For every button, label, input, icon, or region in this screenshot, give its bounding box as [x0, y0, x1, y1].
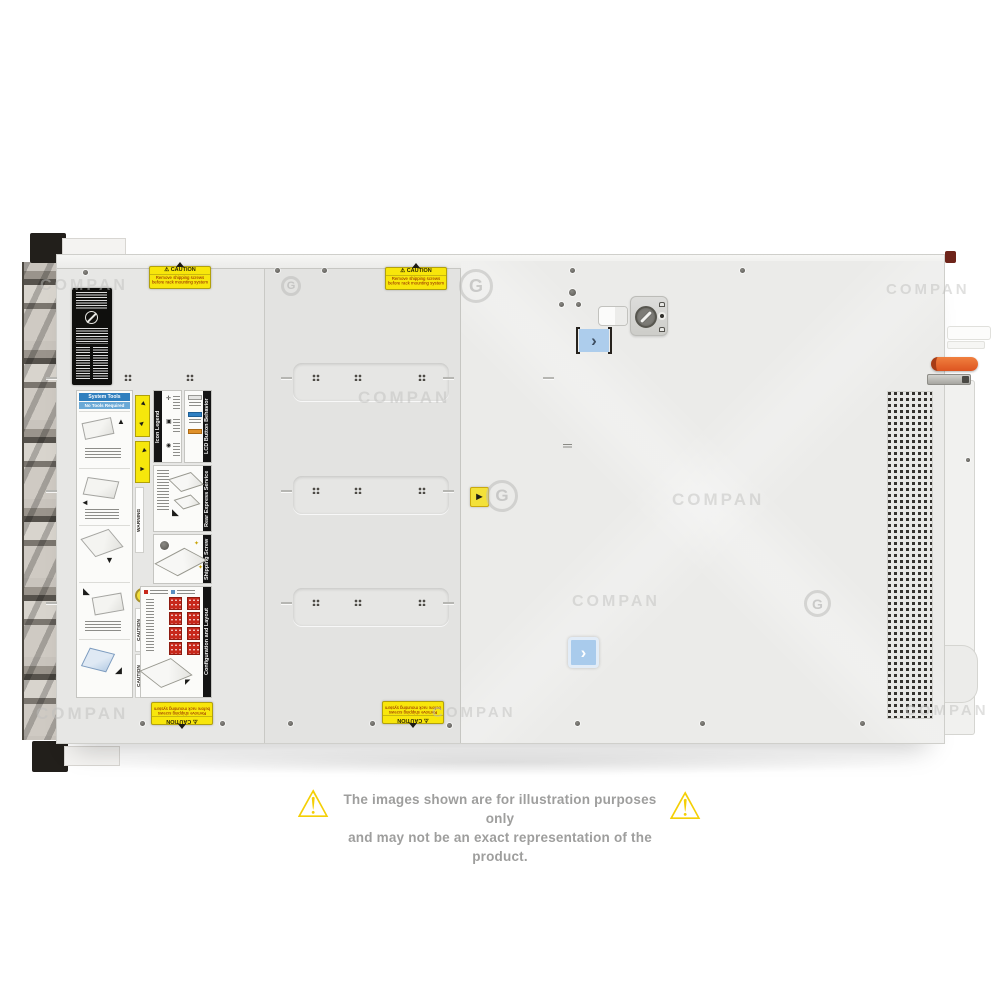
chevron-right-icon: › — [571, 640, 596, 665]
sketch — [92, 593, 125, 616]
fastener-dots — [354, 487, 362, 494]
micro-text — [173, 443, 180, 457]
drive-bay — [187, 642, 200, 655]
fastener-dots — [418, 599, 426, 606]
watermark-logo: G — [281, 276, 301, 296]
side-vent-grid — [887, 391, 933, 719]
warning-triangle-icon: ⚠ — [296, 786, 330, 824]
logo-letter: G — [287, 280, 296, 292]
drive-bay — [169, 627, 182, 640]
caution-sticker-inverted: ⚠ CAUTION Remove shipping screwsbefore r… — [151, 702, 213, 725]
watermark-logo: G — [804, 590, 831, 617]
drive-bay — [187, 597, 200, 610]
watermark-text: COMPAN — [672, 490, 764, 510]
micro-text — [177, 590, 195, 594]
logo-letter: G — [495, 486, 508, 506]
screw — [447, 723, 452, 728]
disclaimer-line1: The images shown are for illustration pu… — [332, 790, 668, 828]
screw — [860, 721, 865, 726]
icon-legend-label: Icon Legend ✛ ▣ ◉ — [153, 390, 182, 463]
hazard-arrow-icon: ► — [474, 491, 485, 503]
drive-bay — [169, 597, 182, 610]
system-tools-header: System Tools — [79, 393, 130, 401]
rear-service-tag-label: Rear Express Service Tag ◣ — [153, 465, 212, 532]
sketch — [80, 529, 123, 557]
screw — [575, 721, 580, 726]
lcd-state-amber — [188, 429, 202, 434]
server-front-bezel — [22, 262, 60, 740]
unlock-icon — [659, 302, 665, 307]
fastener-dots — [312, 599, 320, 606]
arrow-icon: ▲ — [117, 418, 125, 426]
screw — [740, 268, 745, 273]
yellow-arrow-cell: ► ► — [135, 395, 150, 437]
fastener-dots — [418, 374, 426, 381]
drive-bay — [187, 612, 200, 625]
micro-text — [173, 396, 180, 410]
disclaimer-text: The images shown are for illustration pu… — [332, 790, 668, 866]
vent-dash — [443, 377, 454, 379]
screw — [220, 721, 225, 726]
red-legend-dot — [144, 590, 148, 594]
drive-bay — [169, 612, 182, 625]
warning-triangle-icon: ⚠ — [668, 788, 702, 826]
fastener-dots — [312, 374, 320, 381]
watermark-text: COMPAN — [358, 388, 450, 408]
configuration-label: Configuration and Layout ◤ — [140, 586, 212, 698]
service-label-panel: System Tools No Tools Required ▲ ◄ ▼ ◣ — [76, 390, 212, 700]
rack-ear-bottom — [32, 741, 68, 772]
caution-line2: before rack mounting system — [152, 280, 209, 285]
warning-triangle-icon: ⚠ — [193, 718, 198, 724]
drive-bay-grid — [169, 597, 182, 657]
screw — [322, 268, 327, 273]
screw — [569, 289, 576, 296]
label-text-lines — [76, 328, 108, 344]
micro-text — [85, 621, 121, 633]
arrow-icon: ◢ — [115, 666, 122, 675]
chevron-right-icon: › — [579, 329, 609, 352]
instruction-diagram: ◄ — [79, 468, 130, 523]
micro-text — [150, 590, 168, 594]
instruction-diagram: ◣ — [79, 582, 130, 637]
screw — [140, 721, 145, 726]
arrow-icon: ► — [139, 466, 146, 473]
micro-text — [85, 509, 119, 519]
watermark-logo: G — [459, 269, 493, 303]
screw — [570, 268, 575, 273]
watermark-text: COMPAN — [36, 704, 128, 724]
legend-icon: ◉ — [166, 443, 171, 449]
vent-dash — [281, 377, 292, 379]
screw — [966, 458, 970, 462]
rear-tag-header: Rear Express Service Tag — [203, 466, 211, 531]
lock-position-dot — [658, 312, 666, 320]
vent-dash — [281, 490, 292, 492]
arrow-icon: ◣ — [172, 508, 179, 517]
arrow-icon: ◄ — [81, 499, 89, 507]
watermark-text: COMPAN — [432, 704, 516, 721]
caution-line1: Remove shipping screws — [154, 711, 211, 716]
caution-line2: before rack mounting system — [388, 281, 445, 286]
blue-legend-dot — [171, 590, 175, 594]
arrow-icon: ► — [139, 400, 149, 410]
handle-recess — [293, 476, 449, 514]
no-touch-icon — [85, 311, 98, 324]
micro-text — [189, 419, 201, 425]
screw — [83, 270, 88, 275]
keylock-icon — [635, 306, 657, 328]
arrow-icon: ◤ — [185, 679, 190, 686]
no-tools-header: No Tools Required — [79, 402, 130, 409]
handle-recess — [293, 588, 449, 626]
chassis-sketch — [168, 472, 204, 492]
watermark-text: COMPAN — [40, 277, 128, 295]
drop-shadow — [70, 748, 930, 776]
legend-icon: ✛ — [166, 396, 171, 402]
vent-dash — [46, 602, 57, 604]
watermark-text: COMPAN — [572, 593, 660, 611]
disclaimer-line2: and may not be an exact representation o… — [332, 828, 668, 866]
lcd-state-blue — [188, 412, 202, 417]
sketch — [82, 417, 115, 440]
instruction-diagram: ▲ — [79, 411, 130, 466]
vent-dash — [543, 377, 554, 379]
caution-line2: before rack mounting system — [154, 706, 211, 711]
screw — [576, 302, 581, 307]
tools-instruction-label: System Tools No Tools Required ▲ ◄ ▼ ◣ — [76, 390, 133, 698]
pointer-mark — [176, 262, 184, 267]
fastener-dots — [124, 374, 132, 381]
micro-text — [146, 599, 154, 651]
fastener-dots — [186, 374, 194, 381]
screw — [700, 721, 705, 726]
icon-legend-header: Icon Legend — [154, 391, 162, 462]
micro-text — [85, 448, 121, 460]
product-photo-scene: › › ⚠ CAUTION Remove shipping screwsbefo… — [0, 0, 1000, 1000]
logo-letter: G — [812, 596, 823, 612]
micro-text — [189, 402, 201, 408]
arrow-icon: ◣ — [83, 587, 90, 596]
fastener-dots — [354, 374, 362, 381]
arrow-icon: ► — [139, 446, 149, 456]
rail-latch — [927, 374, 971, 385]
instruction-diagram: ▼ — [79, 525, 130, 580]
caution-sticker: ⚠ CAUTION Remove shipping screwsbefore r… — [385, 267, 447, 290]
label-text-lines — [76, 347, 90, 380]
screw — [288, 721, 293, 726]
caution-sticker: ⚠ CAUTION Remove shipping screwsbefore r… — [149, 266, 211, 289]
lock-icon — [659, 327, 665, 332]
lcd-button-header: LCD Button Behavior — [203, 391, 211, 462]
warning-triangle-icon: ⚠ — [424, 717, 429, 723]
watermark-text: COMPAN — [905, 702, 989, 719]
drive-bay — [169, 642, 182, 655]
regulatory-label — [72, 288, 112, 385]
fastener-dots — [312, 487, 320, 494]
vent-dash — [443, 490, 454, 492]
pointer-mark — [409, 723, 417, 728]
top-cover-middle-panel — [265, 269, 461, 743]
lcd-state-off — [188, 395, 202, 400]
micro-text — [157, 470, 169, 510]
vent-dash — [46, 377, 57, 379]
lcd-button-label: LCD Button Behavior — [184, 390, 212, 463]
watermark-text: COMPAN — [886, 281, 970, 298]
release-handle-orange — [931, 357, 978, 371]
arrow-icon: ▼ — [105, 556, 114, 565]
logo-letter: G — [469, 276, 483, 297]
board-sketch — [154, 548, 207, 576]
warning-vertical-text: WARNING — [135, 487, 144, 553]
arrow-icon: ► — [138, 419, 148, 429]
micro-text — [173, 419, 180, 433]
fastener-dots — [354, 599, 362, 606]
label-text-lines — [93, 347, 108, 380]
cover-slide-latch — [598, 306, 628, 326]
screw-icon — [160, 541, 169, 550]
fastener-dots — [418, 487, 426, 494]
yellow-arrow-cell: ► ► — [135, 441, 150, 483]
shipping-screw-label: Shipping Screw Removal ✦ ✦ — [153, 534, 212, 584]
pointer-mark — [412, 263, 420, 268]
instruction-diagram: ◢ — [79, 639, 130, 697]
drive-bay — [187, 627, 200, 640]
screw — [275, 268, 280, 273]
screw — [370, 721, 375, 726]
keylock-plate — [630, 296, 668, 336]
caution-title: CAUTION — [407, 268, 432, 274]
screw — [559, 302, 564, 307]
latch-release-button: › — [568, 637, 599, 668]
right-side-tab — [945, 645, 978, 703]
warning-triangle-icon: ⚠ — [400, 268, 405, 274]
vent-dash — [443, 602, 454, 604]
watermark-logo: G — [486, 480, 518, 512]
configuration-header: Configuration and Layout — [203, 587, 211, 697]
drive-bay-grid — [187, 597, 200, 657]
rail-bracket — [947, 326, 991, 340]
flash-mark: ✦ — [194, 541, 199, 547]
vent-slots — [563, 444, 572, 449]
cover-release-button: › — [579, 329, 609, 352]
sketch-blue — [81, 648, 115, 673]
vent-dash — [281, 602, 292, 604]
flash-mark: ✦ — [198, 565, 203, 571]
rear-tab — [945, 251, 956, 263]
rail-clip-bottom — [64, 746, 120, 766]
rail-bracket-small — [947, 341, 985, 349]
legend-icon: ▣ — [166, 419, 172, 425]
warning-triangle-icon: ⚠ — [164, 267, 169, 273]
sketch — [83, 477, 120, 499]
key-slot — [640, 311, 652, 323]
vent-dash — [46, 490, 57, 492]
pointer-mark — [178, 724, 186, 729]
caution-title: CAUTION — [171, 267, 196, 273]
